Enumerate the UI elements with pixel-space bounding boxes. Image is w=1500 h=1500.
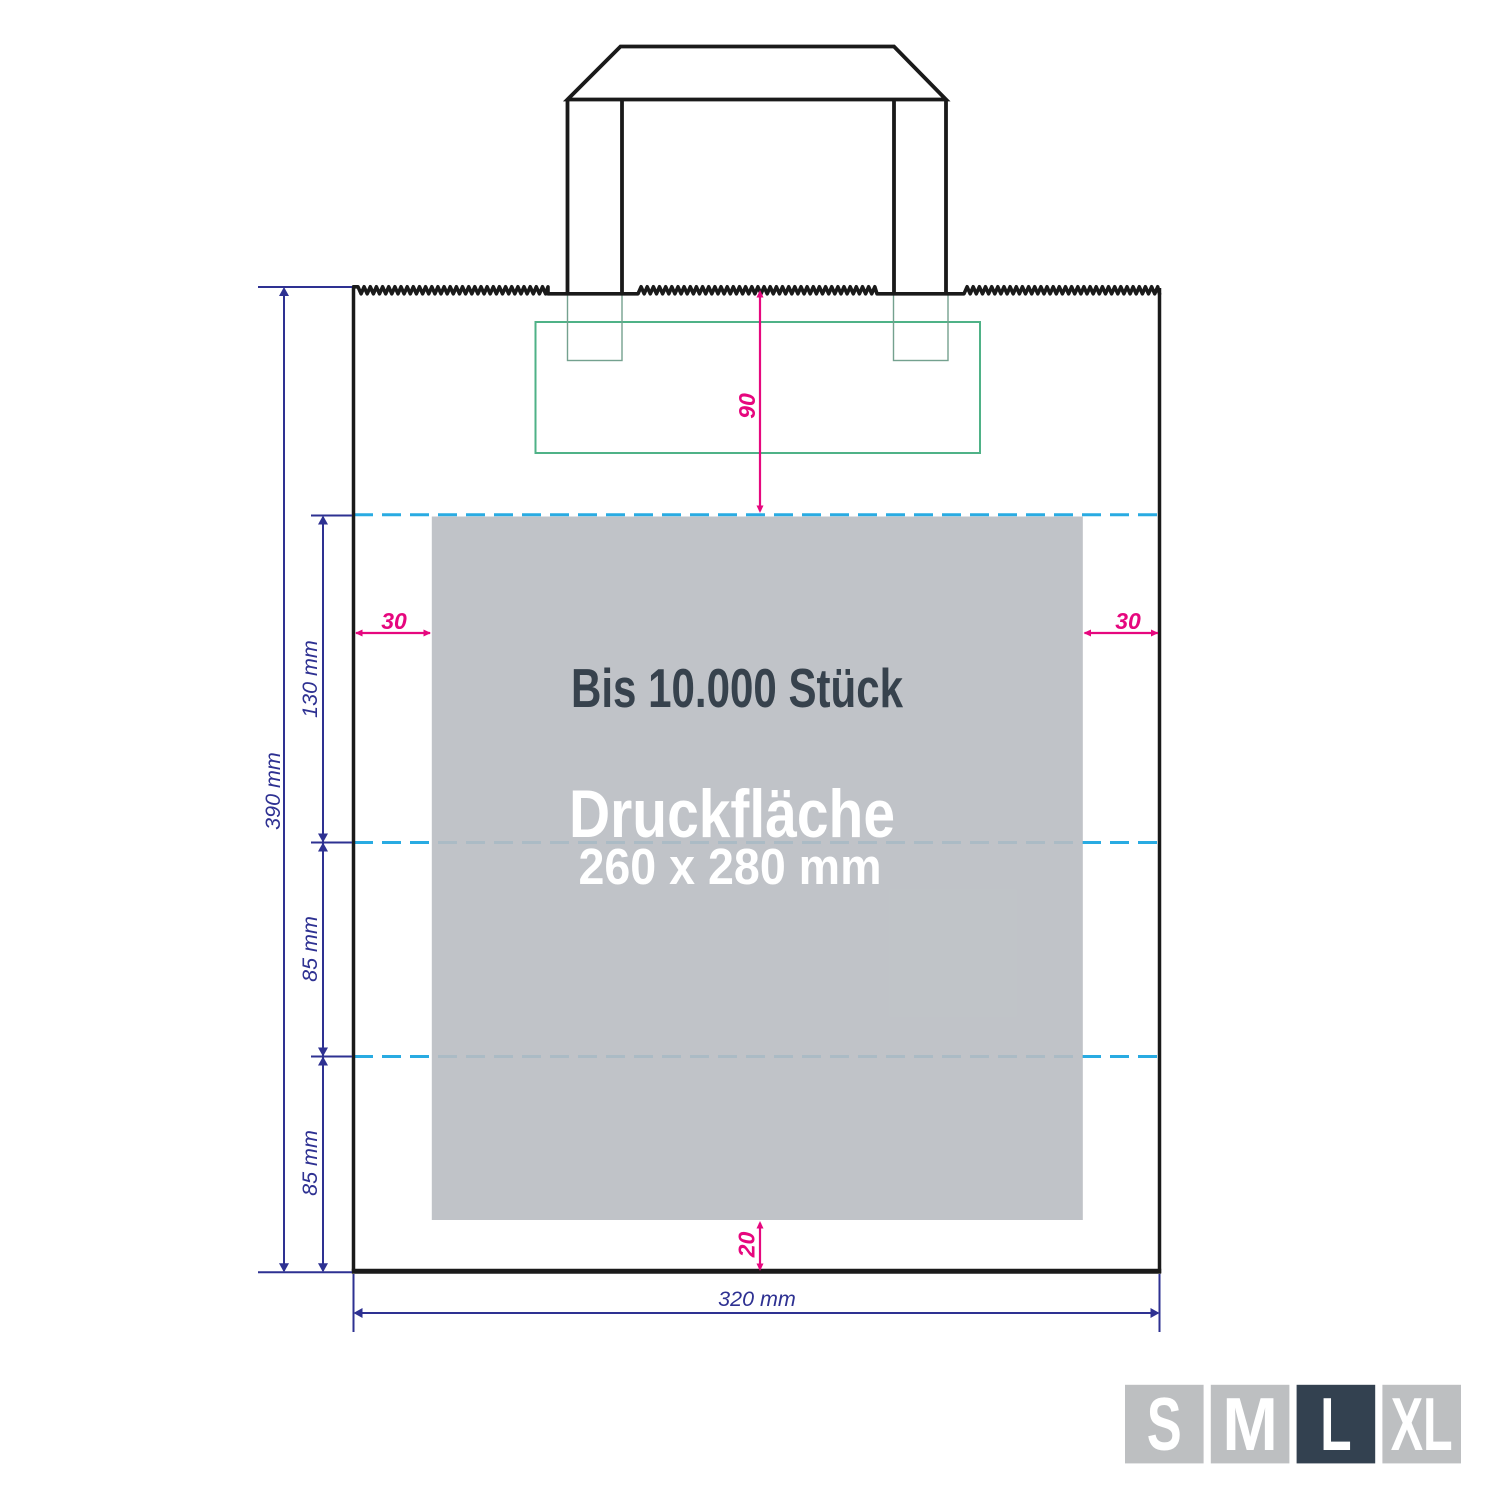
svg-text:85 mm: 85 mm xyxy=(298,916,322,982)
svg-text:S: S xyxy=(1147,1382,1182,1466)
svg-text:390 mm: 390 mm xyxy=(261,752,285,830)
svg-text:Bis 10.000 Stück: Bis 10.000 Stück xyxy=(571,657,903,719)
svg-text:90: 90 xyxy=(734,393,760,419)
svg-text:20: 20 xyxy=(734,1232,760,1259)
svg-text:30: 30 xyxy=(381,608,407,634)
svg-text:85 mm: 85 mm xyxy=(298,1130,322,1196)
svg-text:30: 30 xyxy=(1115,608,1141,634)
svg-text:260 x 280 mm: 260 x 280 mm xyxy=(579,838,882,895)
svg-text:130 mm: 130 mm xyxy=(298,640,322,718)
svg-text:L: L xyxy=(1320,1382,1352,1466)
svg-text:320 mm: 320 mm xyxy=(718,1287,796,1311)
svg-text:XL: XL xyxy=(1391,1382,1453,1466)
svg-text:M: M xyxy=(1222,1382,1278,1466)
